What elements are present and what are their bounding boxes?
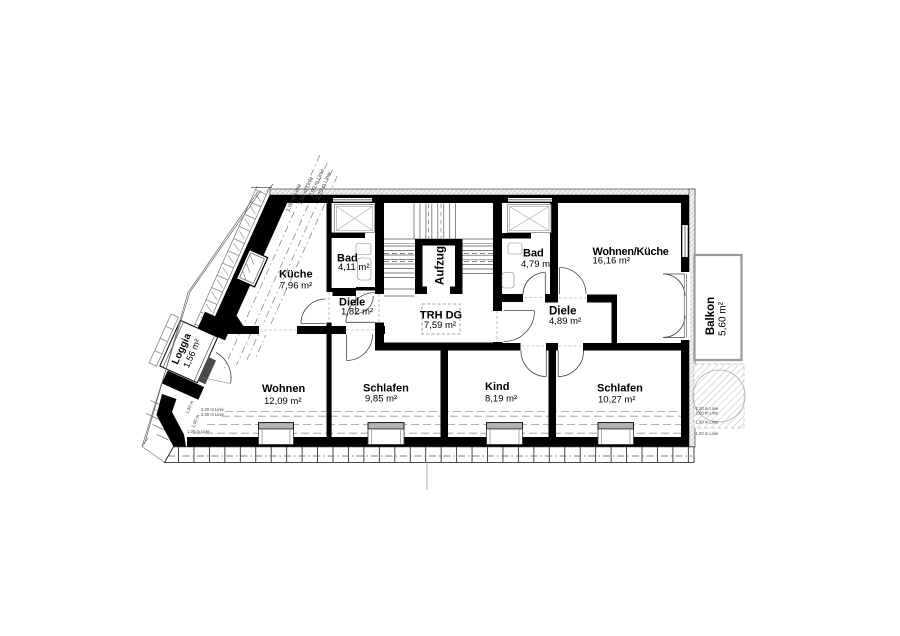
svg-text:4,79 m²: 4,79 m² [521, 259, 553, 270]
svg-text:4,89 m²: 4,89 m² [549, 316, 581, 327]
svg-text:2,00 m Linie: 2,00 m Linie [696, 411, 719, 416]
svg-text:10,27 m²: 10,27 m² [598, 395, 636, 406]
svg-text:1,00 m Linie: 1,00 m Linie [187, 429, 210, 434]
svg-text:1,50 m Linie: 1,50 m Linie [696, 420, 719, 425]
svg-text:7,96 m²: 7,96 m² [280, 281, 312, 292]
svg-text:12,09 m²: 12,09 m² [264, 396, 302, 407]
svg-text:7,59 m²: 7,59 m² [424, 320, 456, 331]
svg-text:2,00 m Linie: 2,00 m Linie [201, 412, 224, 417]
svg-text:Schlafen: Schlafen [597, 383, 643, 395]
svg-text:16,16 m²: 16,16 m² [593, 256, 631, 267]
svg-text:Wohnen: Wohnen [262, 383, 305, 395]
svg-text:Balkon: Balkon [705, 297, 717, 335]
svg-text:4,11 m²: 4,11 m² [338, 262, 370, 273]
svg-text:Aufzug: Aufzug [435, 246, 447, 285]
svg-text:9,85 m²: 9,85 m² [365, 394, 397, 405]
svg-text:8,19 m²: 8,19 m² [485, 394, 517, 405]
svg-text:5,60 m²: 5,60 m² [718, 301, 729, 336]
svg-text:Kind: Kind [485, 381, 509, 393]
svg-text:1,82 m²: 1,82 m² [341, 307, 373, 318]
svg-text:1,00 m Linie: 1,00 m Linie [696, 431, 719, 436]
svg-text:Küche: Küche [279, 269, 313, 281]
svg-text:Bad: Bad [523, 248, 544, 260]
